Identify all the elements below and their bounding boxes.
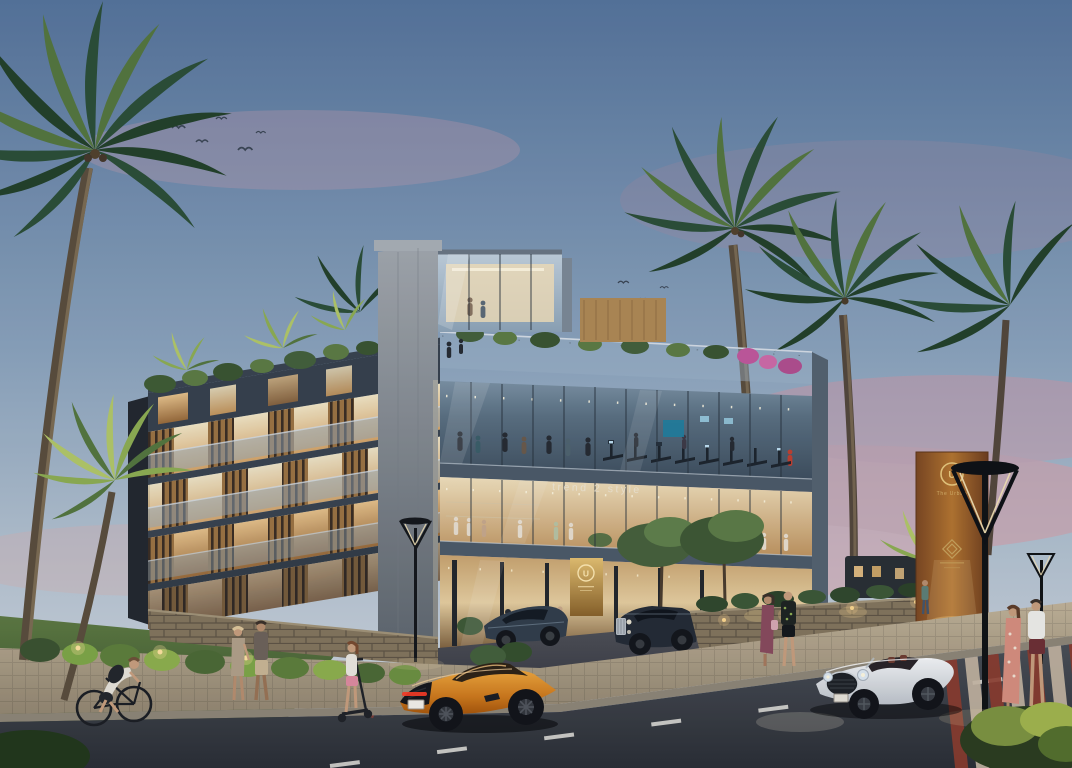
- architectural-rendering: trend 2 style U: [0, 0, 1072, 768]
- color-grade-overlay: [0, 0, 1072, 768]
